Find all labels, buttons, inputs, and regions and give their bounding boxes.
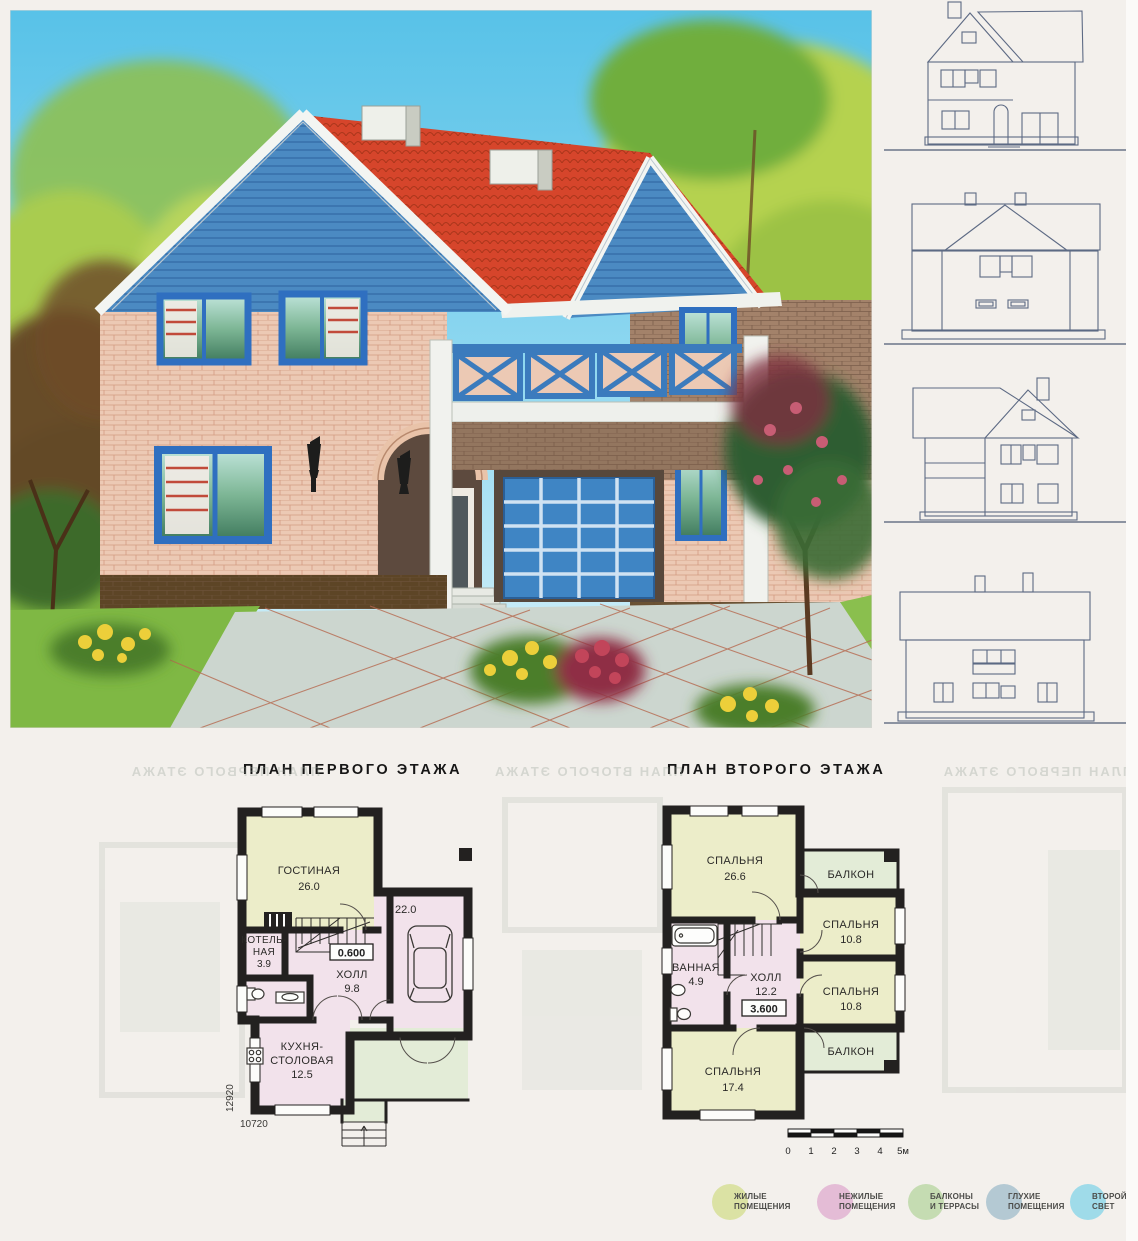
catalog-page: ПЛАН ПЕРВОГО ЭТАЖА ПЛАН ВТОРОГО ЭТАЖА ПЛ… bbox=[0, 0, 1138, 1241]
svg-text:СПАЛЬНЯ: СПАЛЬНЯ bbox=[823, 919, 880, 931]
svg-text:9.8: 9.8 bbox=[344, 983, 359, 995]
garage-area: 22.0 bbox=[395, 904, 416, 916]
svg-text:4.9: 4.9 bbox=[688, 976, 703, 988]
svg-text:5м: 5м bbox=[897, 1146, 909, 1157]
side-elevation-right bbox=[884, 573, 1126, 723]
svg-text:КОТЕЛЬ-: КОТЕЛЬ- bbox=[241, 935, 287, 946]
stove-icon bbox=[247, 1048, 263, 1064]
svg-text:ВАННАЯ: ВАННАЯ bbox=[672, 962, 720, 974]
level-mark: 3.600 bbox=[750, 1004, 778, 1016]
toilet-icon bbox=[247, 988, 264, 1000]
porch-steps bbox=[342, 1122, 386, 1146]
svg-text:10.8: 10.8 bbox=[840, 1001, 861, 1013]
scale-bar: 0 1 2 3 4 5м bbox=[785, 1129, 909, 1157]
side-elevation-left bbox=[884, 193, 1126, 344]
legend-item-second-light: ВТОРОЙ СВЕТ bbox=[1070, 1184, 1127, 1220]
legend-item-living: ЖИЛЫЕ ПОМЕЩЕНИЯ bbox=[712, 1184, 791, 1220]
level-mark: 0.600 bbox=[338, 948, 366, 960]
toilet-icon bbox=[670, 1008, 691, 1021]
legend-item-utility: НЕЖИЛЫЕ ПОМЕЩЕНИЯ bbox=[817, 1184, 896, 1220]
svg-text:ХОЛЛ: ХОЛЛ bbox=[336, 969, 367, 981]
svg-text:ПЛАН ПЕРВОГО ЭТАЖА: ПЛАН ПЕРВОГО ЭТАЖА bbox=[942, 764, 1133, 779]
first-floor-plan: 0.600 ГОСТИНАЯ 26.0 КОТЕЛЬ- НАЯ 3.9 ХОЛЛ… bbox=[225, 807, 473, 1146]
svg-text:12.2: 12.2 bbox=[755, 986, 776, 998]
rear-elevation bbox=[884, 378, 1126, 522]
second-floor-plan: 3.600 СПАЛЬНЯ 26.6 БАЛКОН СПАЛЬНЯ 10.8 С… bbox=[662, 806, 905, 1120]
svg-text:ПЛАН ВТОРОГО ЭТАЖА: ПЛАН ВТОРОГО ЭТАЖА bbox=[493, 764, 683, 779]
svg-text:БАЛКОН: БАЛКОН bbox=[828, 1046, 875, 1058]
svg-text:КУХНЯ-: КУХНЯ- bbox=[281, 1041, 324, 1053]
svg-text:БАЛКОН: БАЛКОН bbox=[828, 869, 875, 881]
bathtub-icon bbox=[672, 925, 717, 946]
room-label: ГОСТИНАЯ bbox=[278, 865, 341, 877]
sink-icon bbox=[276, 992, 304, 1003]
svg-text:12.5: 12.5 bbox=[291, 1069, 312, 1081]
floor-plans: ПЛАН ПЕРВОГО ЭТАЖА ПЛАН ВТОРОГО ЭТАЖА ПЛ… bbox=[0, 755, 1138, 1241]
svg-text:НАЯ: НАЯ bbox=[253, 947, 275, 958]
svg-text:СПАЛЬНЯ: СПАЛЬНЯ bbox=[707, 855, 764, 867]
svg-text:17.4: 17.4 bbox=[722, 1082, 743, 1094]
legend-item-deaf: ГЛУХИЕ ПОМЕЩЕНИЯ bbox=[986, 1184, 1065, 1220]
sink-icon bbox=[671, 985, 685, 996]
svg-text:1: 1 bbox=[808, 1146, 813, 1157]
dim-height: 12920 bbox=[225, 1084, 236, 1112]
svg-text:СПАЛЬНЯ: СПАЛЬНЯ bbox=[705, 1066, 762, 1078]
svg-text:4: 4 bbox=[877, 1146, 882, 1157]
chimney-marker bbox=[459, 848, 472, 861]
room-area: 26.0 bbox=[298, 881, 319, 893]
svg-text:2: 2 bbox=[831, 1146, 836, 1157]
dim-width: 10720 bbox=[240, 1119, 268, 1130]
page-margin bbox=[1126, 0, 1138, 1241]
svg-text:СПАЛЬНЯ: СПАЛЬНЯ bbox=[823, 986, 880, 998]
elevation-drawings bbox=[0, 0, 1138, 755]
svg-text:3: 3 bbox=[854, 1146, 859, 1157]
svg-text:3.9: 3.9 bbox=[257, 959, 271, 970]
svg-text:10.8: 10.8 bbox=[840, 934, 861, 946]
front-elevation bbox=[884, 2, 1126, 150]
ghost-title: ПЛАН ПЕРВОГО ЭТАЖА ПЛАН ВТОРОГО ЭТАЖА ПЛ… bbox=[130, 764, 1133, 779]
legend-item-balconies: БАЛКОНЫ И ТЕРРАСЫ bbox=[908, 1184, 979, 1220]
svg-text:ПЛАН ПЕРВОГО ЭТАЖА: ПЛАН ПЕРВОГО ЭТАЖА bbox=[130, 764, 321, 779]
svg-text:0: 0 bbox=[785, 1146, 790, 1157]
svg-text:26.6: 26.6 bbox=[724, 871, 745, 883]
svg-text:ХОЛЛ: ХОЛЛ bbox=[750, 972, 781, 984]
svg-text:СТОЛОВАЯ: СТОЛОВАЯ bbox=[270, 1055, 333, 1067]
